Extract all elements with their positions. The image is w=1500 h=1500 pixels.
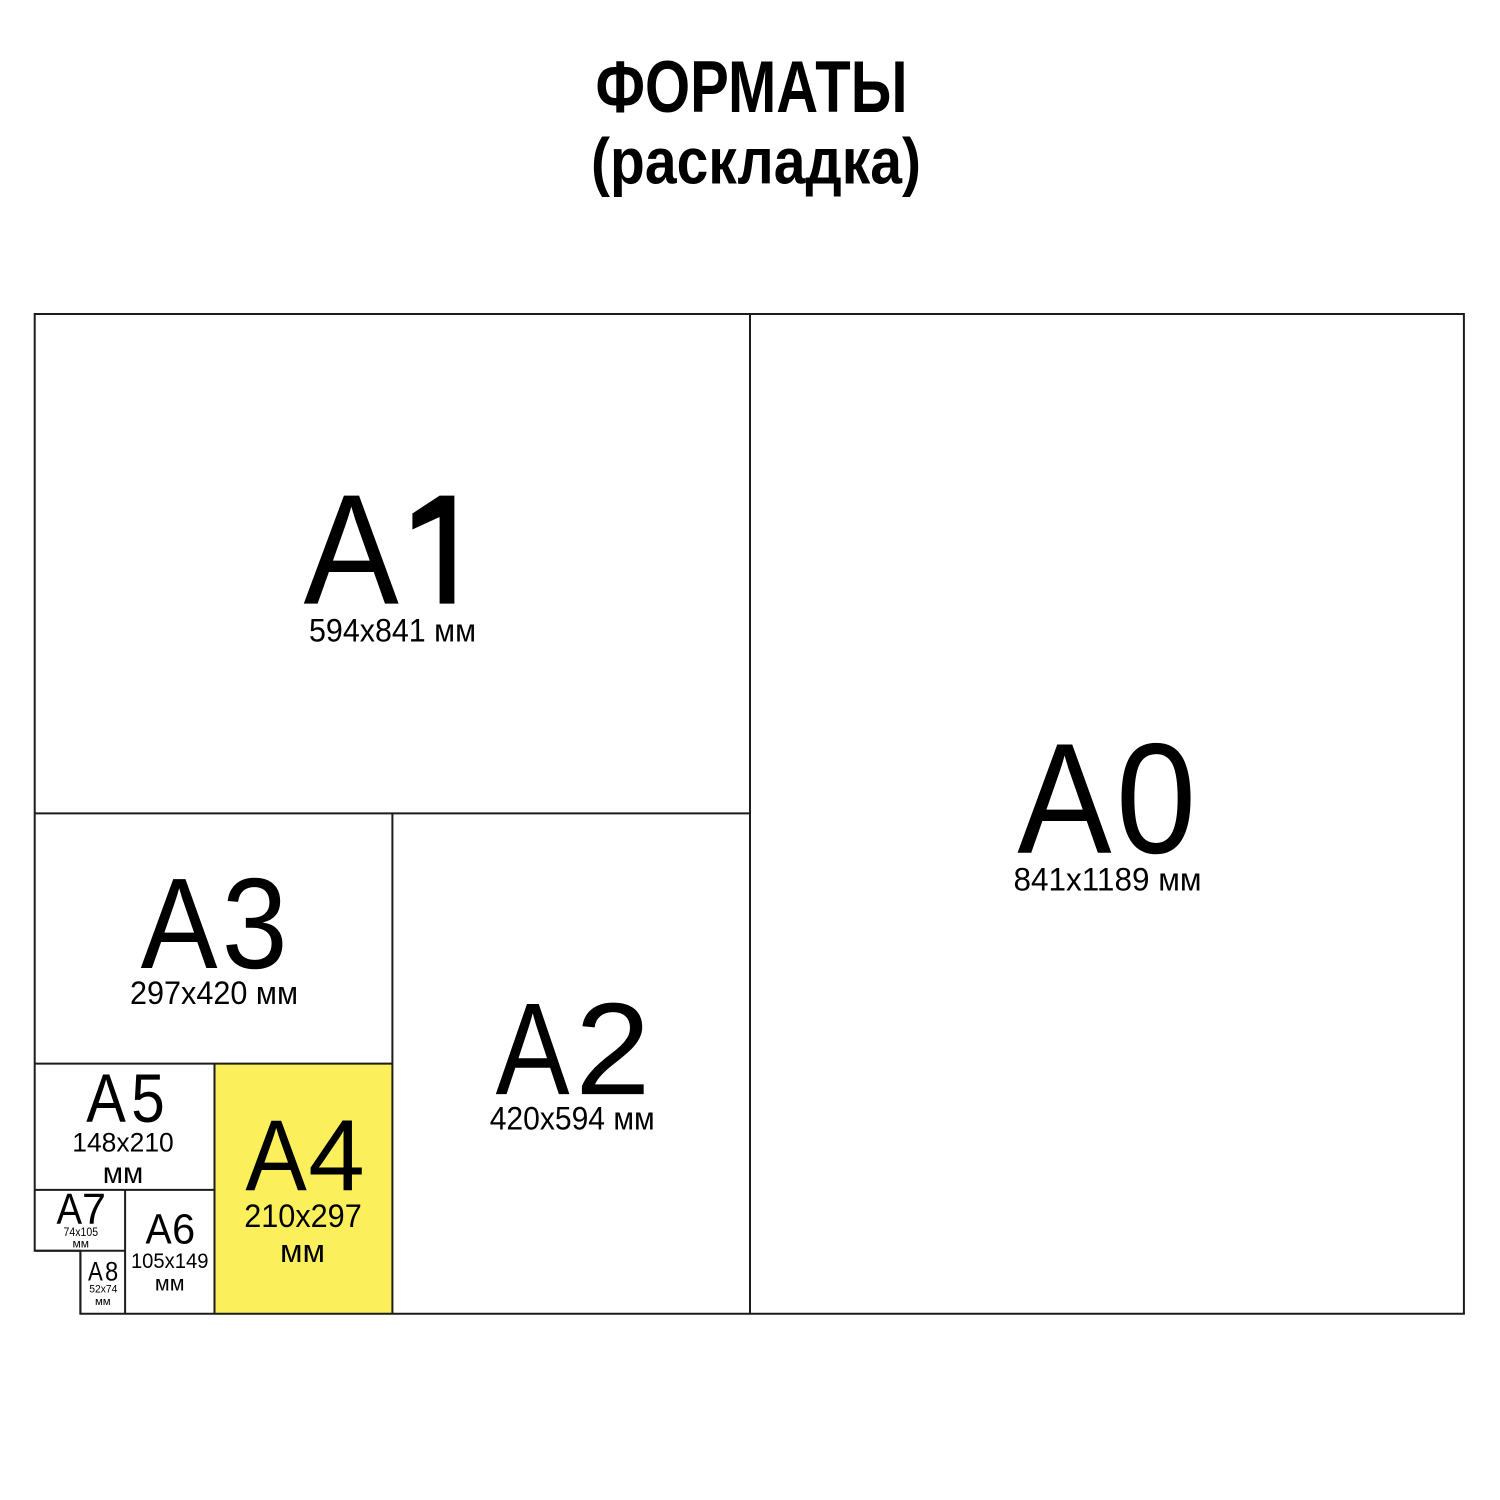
- svg-text:(раскладка): (раскладка): [591, 125, 921, 198]
- svg-text:841х1189 мм: 841х1189 мм: [1014, 862, 1202, 898]
- svg-text:297х420 мм: 297х420 мм: [130, 975, 298, 1011]
- svg-text:мм: мм: [95, 1296, 111, 1308]
- svg-text:8: 8: [105, 1257, 118, 1287]
- svg-text:105х149: 105х149: [131, 1249, 209, 1273]
- svg-text:594х841 мм: 594х841 мм: [309, 612, 476, 648]
- svg-text:А: А: [245, 1098, 307, 1212]
- svg-text:А: А: [1017, 711, 1112, 887]
- svg-text:210х297: 210х297: [244, 1198, 362, 1234]
- svg-text:А: А: [86, 1060, 126, 1137]
- svg-text:мм: мм: [72, 1237, 89, 1251]
- svg-text:4: 4: [308, 1098, 364, 1212]
- svg-text:0: 0: [1116, 710, 1196, 886]
- svg-text:ФОРМАТЫ: ФОРМАТЫ: [596, 47, 908, 128]
- svg-text:5: 5: [131, 1061, 165, 1137]
- svg-text:148х210: 148х210: [72, 1128, 174, 1158]
- svg-text:52х74: 52х74: [89, 1284, 117, 1296]
- svg-text:мм: мм: [155, 1272, 185, 1296]
- svg-text:мм: мм: [103, 1157, 144, 1190]
- svg-text:6: 6: [172, 1205, 195, 1253]
- svg-text:А: А: [146, 1205, 173, 1253]
- svg-text:мм: мм: [280, 1232, 325, 1269]
- svg-text:А: А: [304, 461, 399, 637]
- svg-text:420х594 мм: 420х594 мм: [490, 1100, 655, 1136]
- svg-text:А: А: [141, 851, 218, 996]
